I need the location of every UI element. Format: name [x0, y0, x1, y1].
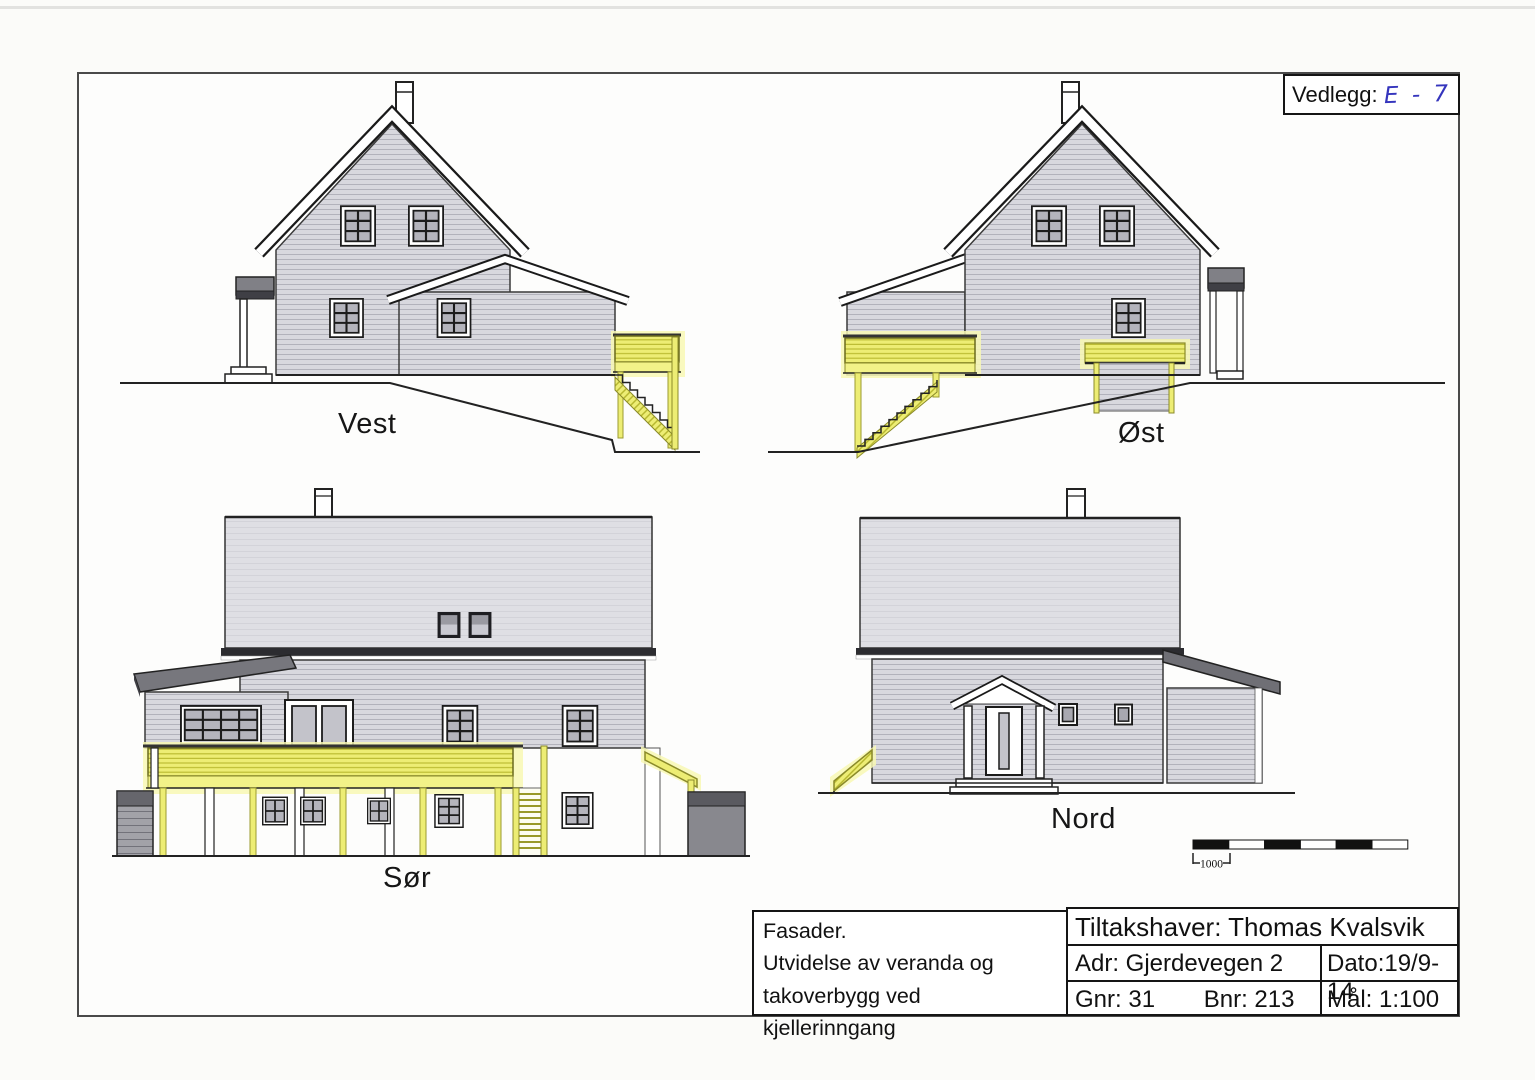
vest-label: Vest: [338, 408, 396, 441]
description-line-2: Utvidelse av veranda og: [763, 947, 1057, 979]
gnr-bnr-cell: Gnr: 31 Bnr: 213: [1068, 982, 1320, 1014]
ost-label: Øst: [1118, 417, 1165, 450]
tiltakshaver-cell: Tiltakshaver: Thomas Kvalsvik: [1068, 909, 1457, 944]
vest-entry-porch: [225, 277, 274, 383]
description-line-3: takoverbygg ved kjellerinngang: [763, 980, 1057, 1045]
sor-label: Sør: [383, 862, 431, 895]
nord-basement-entry-roof: [830, 745, 876, 797]
sor-veranda-deck: [143, 742, 523, 794]
ost-main-wall: [965, 124, 1200, 375]
nord-label: Nord: [1051, 803, 1116, 836]
address-row: Adr: Gjerdevegen 2 Dato:19/9-14: [1068, 944, 1457, 980]
scale-bar-value: 1000: [1200, 859, 1223, 871]
scan-artifact: [0, 6, 1535, 9]
ost-stairs: [857, 380, 937, 458]
scale-bar-segments: [1193, 840, 1408, 849]
ost-veranda-deck: [841, 331, 981, 451]
description-line-1: Fasader.: [763, 915, 1057, 947]
bnr-value: Bnr: 213: [1204, 986, 1295, 1013]
gnr-value: Gnr: 31: [1075, 986, 1155, 1013]
vedlegg-box: Vedlegg: E - 7: [1283, 74, 1460, 115]
adr-cell: Adr: Gjerdevegen 2: [1068, 946, 1320, 980]
sor-roof: [221, 517, 656, 660]
drawing-sheet: Vest: [0, 0, 1535, 1080]
dato-cell: Dato:19/9-14: [1320, 946, 1457, 980]
parcel-row: Gnr: 31 Bnr: 213 Mål: 1:100: [1068, 980, 1457, 1014]
sor-retaining-wall-left: [117, 791, 153, 856]
sor-extension: [134, 655, 296, 748]
scale-bar: 1000: [1185, 836, 1420, 878]
nord-extension: [1163, 650, 1280, 783]
vest-ground: [120, 375, 700, 452]
sor-elevation-drawing: [105, 483, 765, 883]
nord-chimney: [1067, 489, 1085, 518]
ost-entry-porch: [1208, 268, 1244, 379]
vest-elevation-drawing: [100, 75, 720, 475]
sor-retaining-wall-right: [688, 792, 745, 856]
mal-cell: Mål: 1:100: [1320, 982, 1457, 1014]
nord-elevation-drawing: [800, 480, 1440, 820]
sor-chimney: [315, 489, 332, 518]
ost-elevation-drawing: [760, 75, 1460, 475]
vedlegg-label: Vedlegg:: [1292, 82, 1378, 108]
vest-wing-wall: [399, 292, 615, 375]
nord-roof: [856, 518, 1184, 659]
title-block-description: Fasader. Utvidelse av veranda og takover…: [752, 910, 1068, 1016]
title-block-info: Tiltakshaver: Thomas Kvalsvik Adr: Gjerd…: [1066, 907, 1459, 1016]
sor-patio-door: [285, 700, 353, 748]
vedlegg-value-handwritten: E - 7: [1383, 80, 1451, 108]
